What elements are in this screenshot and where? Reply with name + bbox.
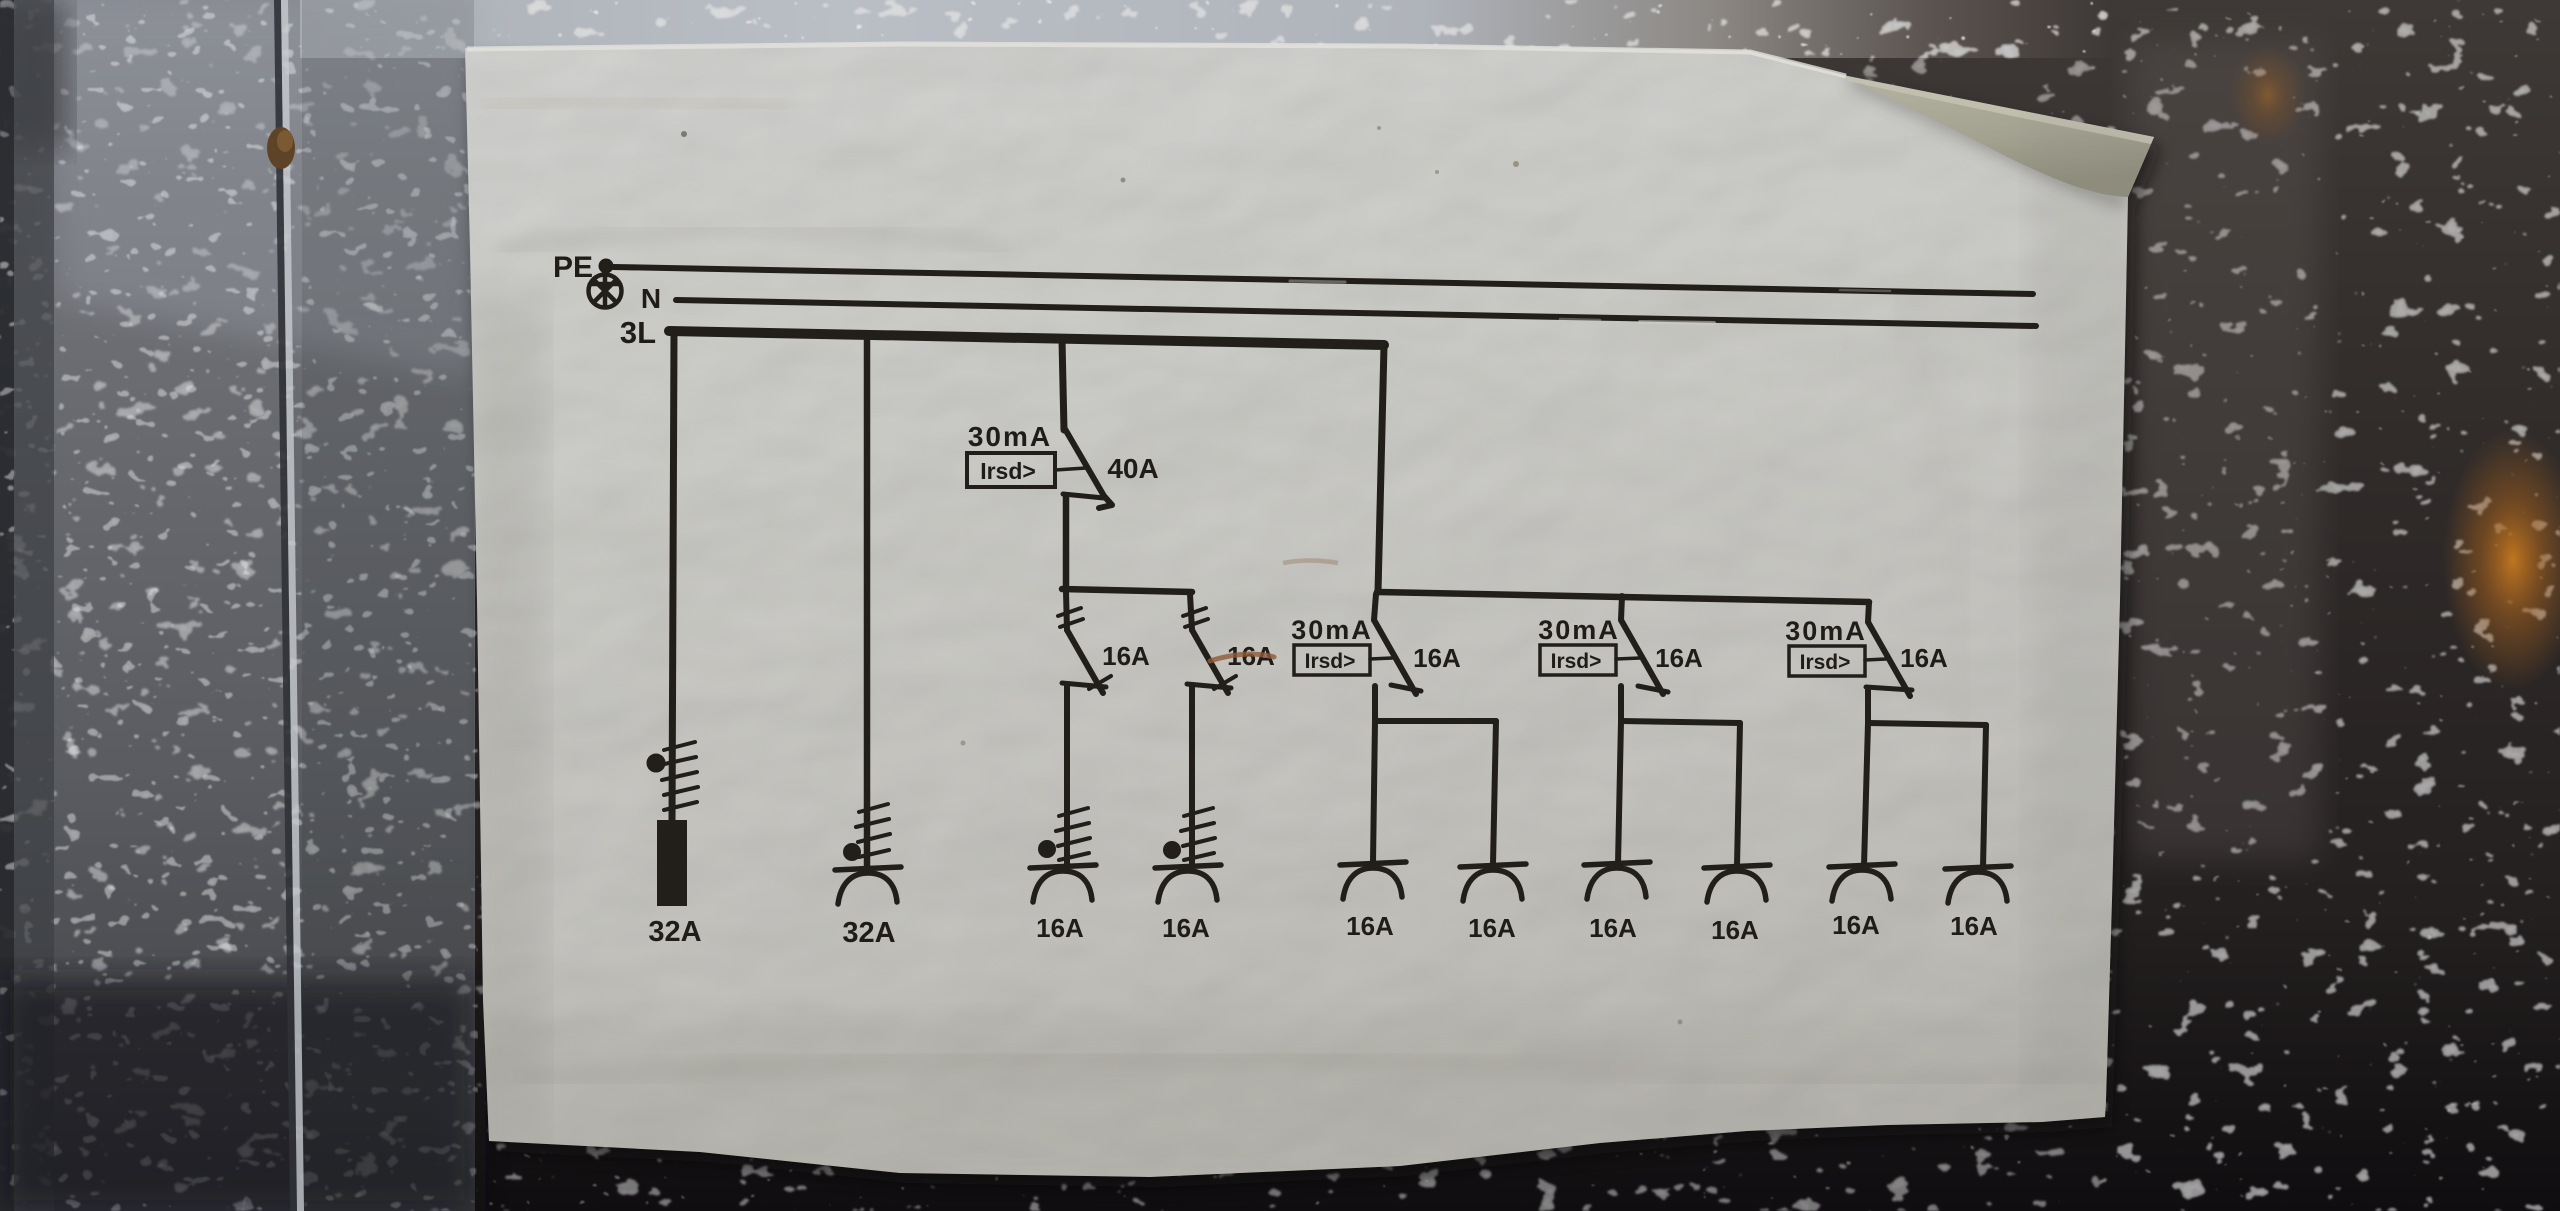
svg-text:Irsd>: Irsd> bbox=[1551, 650, 1602, 673]
svg-text:16A: 16A bbox=[1036, 913, 1084, 943]
svg-text:16A: 16A bbox=[1711, 915, 1759, 945]
svg-text:16A: 16A bbox=[1346, 911, 1394, 941]
svg-text:Irsd>: Irsd> bbox=[1305, 650, 1356, 673]
svg-text:16A: 16A bbox=[1589, 913, 1637, 943]
svg-text:16A: 16A bbox=[1832, 910, 1880, 940]
svg-text:Irsd>: Irsd> bbox=[980, 458, 1036, 484]
svg-text:N: N bbox=[641, 283, 661, 314]
svg-text:16A: 16A bbox=[1900, 643, 1948, 673]
svg-text:16A: 16A bbox=[1413, 643, 1461, 673]
svg-text:16A: 16A bbox=[1162, 913, 1210, 943]
svg-text:30mA: 30mA bbox=[1538, 615, 1620, 645]
svg-text:16A: 16A bbox=[1950, 911, 1998, 941]
svg-text:32A: 32A bbox=[648, 916, 701, 948]
svg-text:Irsd>: Irsd> bbox=[1800, 651, 1851, 674]
svg-text:30mA: 30mA bbox=[1785, 616, 1867, 646]
svg-text:3L: 3L bbox=[620, 315, 656, 350]
svg-text:16A: 16A bbox=[1655, 643, 1703, 673]
svg-text:30mA: 30mA bbox=[968, 421, 1052, 452]
svg-text:30mA: 30mA bbox=[1291, 615, 1373, 645]
svg-text:PE: PE bbox=[553, 251, 593, 284]
svg-text:16A: 16A bbox=[1468, 913, 1516, 943]
svg-text:32A: 32A bbox=[842, 917, 895, 949]
svg-text:16A: 16A bbox=[1102, 641, 1150, 671]
svg-text:40A: 40A bbox=[1107, 453, 1158, 484]
